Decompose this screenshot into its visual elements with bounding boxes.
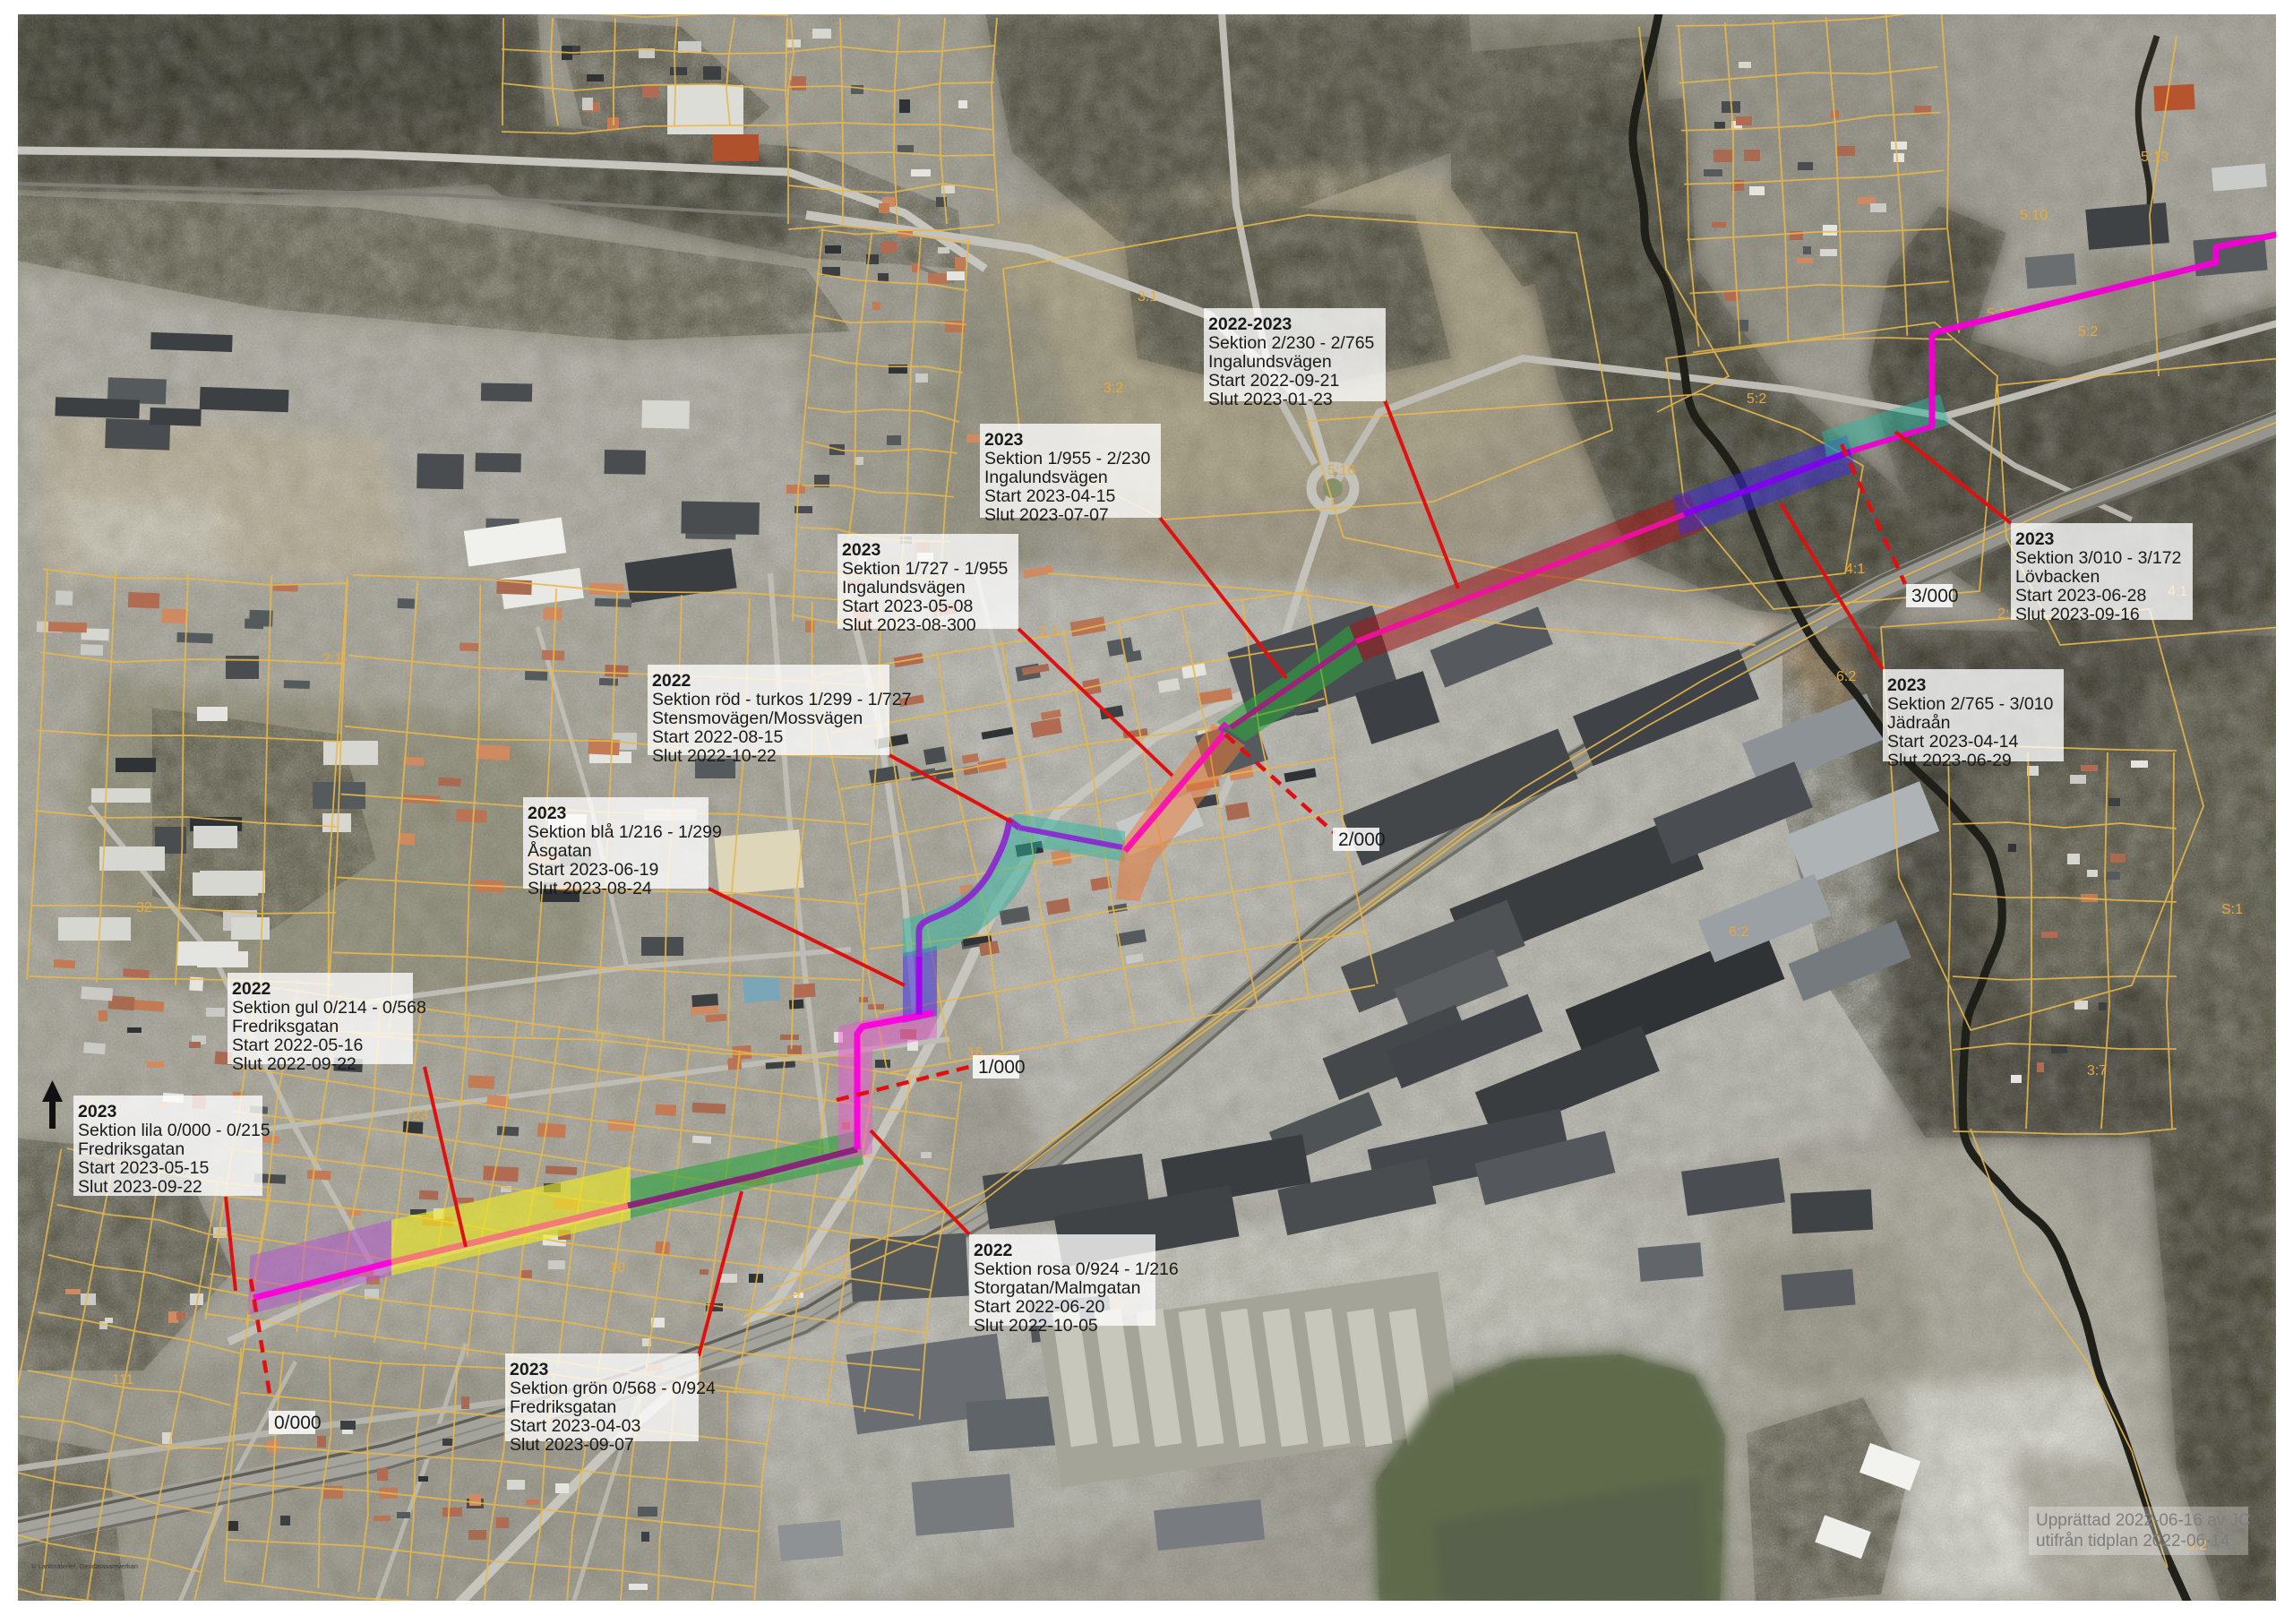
svg-text:2023: 2023	[2015, 529, 2055, 549]
svg-text:Slut 2023-09-22: Slut 2023-09-22	[78, 1177, 202, 1197]
svg-text:10: 10	[609, 1260, 625, 1276]
svg-text:2023: 2023	[984, 430, 1024, 450]
svg-text:Sektion gul 0/214 - 0/568: Sektion gul 0/214 - 0/568	[232, 998, 426, 1018]
svg-text:Sektion 1/955 - 2/230: Sektion 1/955 - 2/230	[984, 449, 1151, 468]
svg-text:2:1: 2:1	[322, 651, 342, 666]
svg-text:Slut 2023-09-16: Slut 2023-09-16	[2015, 605, 2140, 624]
svg-text:5:13: 5:13	[2141, 150, 2168, 165]
svg-text:Fredriksgatan: Fredriksgatan	[78, 1139, 185, 1159]
svg-text:2022-2023: 2022-2023	[1208, 314, 1292, 334]
svg-text:Åsgatan: Åsgatan	[528, 840, 592, 861]
svg-text:Slut 2023-01-23: Slut 2023-01-23	[1208, 390, 1333, 409]
svg-text:Sektion rosa 0/924 - 1/216: Sektion rosa 0/924 - 1/216	[974, 1259, 1179, 1279]
svg-text:Start 2023-04-14: Start 2023-04-14	[1887, 732, 2019, 752]
svg-text:3/000: 3/000	[1911, 586, 1959, 606]
svg-text:32: 32	[136, 900, 152, 915]
svg-text:Start 2023-04-15: Start 2023-04-15	[984, 486, 1116, 506]
svg-text:2023: 2023	[78, 1102, 117, 1121]
svg-text:3:2: 3:2	[1104, 381, 1123, 396]
svg-text:Slut 2023-08-24: Slut 2023-08-24	[528, 879, 652, 898]
svg-text:2:1: 2:1	[1039, 624, 1059, 640]
svg-text:2023: 2023	[528, 803, 567, 823]
svg-text:Start 2022-08-15: Start 2022-08-15	[652, 727, 784, 747]
svg-text:2023: 2023	[1887, 675, 1927, 695]
svg-text:Ingalundsvägen: Ingalundsvägen	[842, 578, 966, 597]
svg-text:Slut 2022-10-22: Slut 2022-10-22	[652, 746, 777, 766]
svg-text:2023: 2023	[510, 1360, 549, 1379]
svg-text:6:2: 6:2	[1836, 669, 1856, 684]
svg-text:utifrån tidplan 2022-06-14: utifrån tidplan 2022-06-14	[2036, 1532, 2230, 1551]
svg-text:Slut 2023-07-07: Slut 2023-07-07	[984, 505, 1109, 525]
svg-text:Start 2022-09-21: Start 2022-09-21	[1208, 371, 1339, 391]
svg-text:5:16: 5:16	[1327, 463, 1355, 478]
svg-text:Ingalundsvägen: Ingalundsvägen	[1208, 352, 1332, 372]
svg-text:23: 23	[412, 1108, 428, 1123]
svg-text:Start 2023-06-19: Start 2023-06-19	[528, 860, 658, 880]
svg-text:Slut 2022-09-22: Slut 2022-09-22	[232, 1054, 356, 1074]
svg-text:Start 2023-05-15: Start 2023-05-15	[78, 1158, 210, 1178]
svg-text:S:1: S:1	[2221, 902, 2243, 917]
svg-text:Start 2023-06-28: Start 2023-06-28	[2015, 586, 2146, 606]
svg-text:6:2: 6:2	[1729, 924, 1748, 940]
svg-text:Start 2022-06-20: Start 2022-06-20	[974, 1297, 1105, 1317]
svg-text:Start 2022-05-16: Start 2022-05-16	[232, 1035, 363, 1055]
svg-text:Sektion lila 0/000 - 0/215: Sektion lila 0/000 - 0/215	[78, 1121, 271, 1140]
svg-text:Storgatan/Malmgatan: Storgatan/Malmgatan	[974, 1278, 1140, 1298]
svg-text:5:10: 5:10	[2020, 208, 2048, 223]
svg-text:Slut 2022-10-05: Slut 2022-10-05	[974, 1316, 1098, 1336]
svg-text:2022: 2022	[652, 671, 691, 691]
svg-text:Ingalundsvägen: Ingalundsvägen	[984, 468, 1108, 487]
svg-text:Sektion grön 0/568 - 0/924: Sektion grön 0/568 - 0/924	[510, 1379, 716, 1398]
svg-text:0/000: 0/000	[274, 1413, 322, 1433]
svg-text:2023: 2023	[842, 540, 881, 560]
svg-text:1/000: 1/000	[978, 1057, 1026, 1078]
svg-text:Fredriksgatan: Fredriksgatan	[510, 1397, 616, 1417]
svg-text:5:2: 5:2	[1747, 391, 1766, 407]
svg-text:Sektion blå 1/216 - 1/299: Sektion blå 1/216 - 1/299	[528, 822, 722, 842]
svg-text:3:7: 3:7	[2087, 1063, 2107, 1078]
svg-text:Sektion 2/765 - 3/010: Sektion 2/765 - 3/010	[1887, 694, 2054, 714]
svg-text:Sektion 2/230 - 2/765: Sektion 2/230 - 2/765	[1208, 333, 1375, 353]
svg-text:3:1: 3:1	[1138, 289, 1157, 305]
svg-text:5:2: 5:2	[2078, 324, 2098, 339]
svg-text:4:1: 4:1	[1845, 562, 1865, 577]
svg-text:111: 111	[112, 1372, 133, 1388]
svg-text:2022: 2022	[974, 1241, 1013, 1260]
svg-text:Fredriksgatan: Fredriksgatan	[232, 1017, 339, 1036]
svg-text:© Lantmäteriet, Geodatasamverk: © Lantmäteriet, Geodatasamverkan	[31, 1562, 138, 1570]
svg-text:Sektion 1/727 - 1/955: Sektion 1/727 - 1/955	[842, 559, 1009, 579]
svg-text:Start 2023-05-08: Start 2023-05-08	[842, 597, 973, 616]
svg-text:2022: 2022	[232, 979, 271, 999]
svg-text:2/000: 2/000	[1338, 829, 1386, 850]
svg-text:Sektion 3/010 - 3/172: Sektion 3/010 - 3/172	[2015, 548, 2181, 568]
svg-text:Stensmovägen/Mossvägen: Stensmovägen/Mossvägen	[652, 709, 863, 728]
svg-text:Upprättad 2022-06-16 av JC: Upprättad 2022-06-16 av JC	[2036, 1511, 2251, 1530]
svg-text:Lövbacken: Lövbacken	[2015, 567, 2100, 587]
svg-text:Slut 2023-08-300: Slut 2023-08-300	[842, 615, 976, 635]
svg-text:Slut 2023-06-29: Slut 2023-06-29	[1887, 751, 2012, 770]
svg-text:Sektion röd - turkos 1/299 - 1: Sektion röd - turkos 1/299 - 1/727	[652, 690, 911, 709]
svg-text:Start 2023-04-03: Start 2023-04-03	[510, 1416, 640, 1436]
svg-text:Slut 2023-09-07: Slut 2023-09-07	[510, 1435, 634, 1455]
svg-text:Jädraån: Jädraån	[1887, 713, 1950, 733]
